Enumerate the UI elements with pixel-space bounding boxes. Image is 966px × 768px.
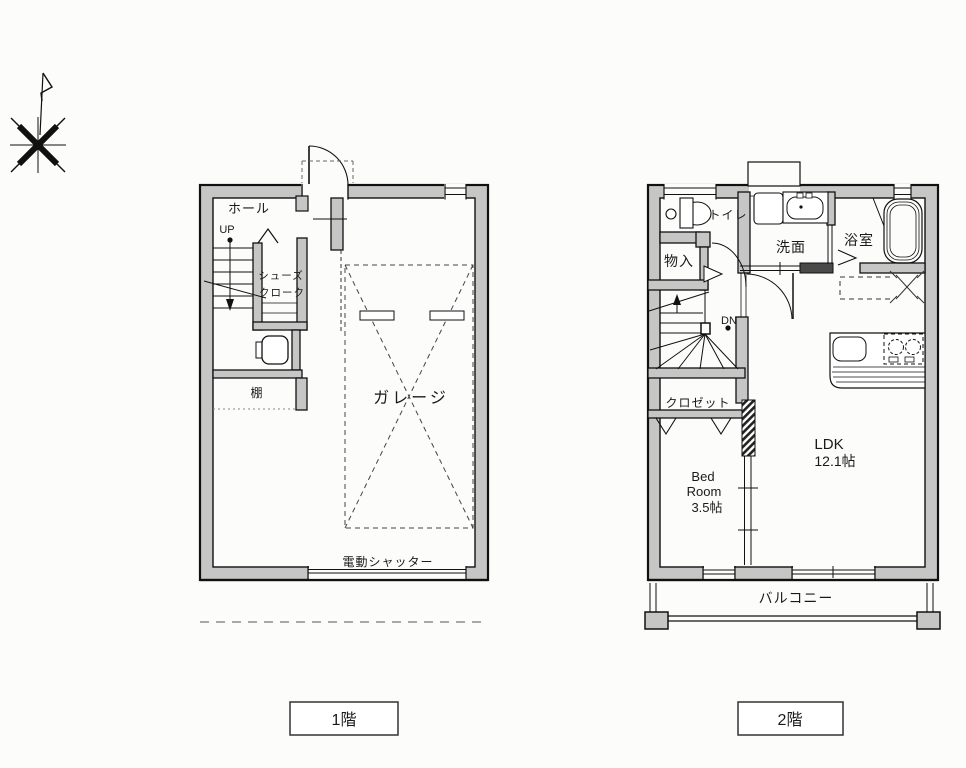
window-toilet [664, 184, 716, 200]
room-label-washroom: 洗面 [776, 239, 806, 255]
compass-north-icon [10, 73, 66, 173]
utility-sink-fixture [256, 336, 288, 364]
wall-cabinet-symbol [840, 271, 924, 303]
room-label-storage: 物入 [664, 253, 694, 269]
garage-marks [360, 311, 464, 320]
entrance-door [296, 146, 353, 211]
up-label: UP [219, 224, 234, 236]
bathtub-fixture [828, 198, 922, 265]
room-label-garage: ガレージ [373, 389, 449, 407]
floor1-plan: UP シューズ クローク 棚 ホール ガレージ 電動シャッター [200, 146, 488, 622]
window-bathroom [894, 184, 911, 200]
room-label-bedroom-2: Room [687, 484, 722, 499]
floor1-caption: 1階 [332, 711, 357, 729]
sliding-door-partition [738, 400, 758, 565]
room-label-bedroom-size: 3.5帖 [691, 500, 722, 515]
room-label-shoe-closet-1: シューズ [258, 269, 303, 282]
room-label-hall: ホール [228, 201, 270, 216]
kitchen-sink [833, 337, 866, 361]
dn-label: DN [721, 315, 737, 327]
room-label-closet: クロゼット [665, 396, 730, 410]
wall-dark-section [800, 263, 833, 273]
room-label-ldk: LDK [814, 436, 843, 453]
room-label-bathroom: 浴室 [844, 232, 874, 248]
storage-door-mark [704, 266, 722, 282]
label-electric-shutter: 電動シャッター [342, 555, 433, 569]
window-1f-top [444, 184, 466, 200]
floor-plan-page: UP シューズ クローク 棚 ホール ガレージ 電動シャッター [0, 0, 966, 768]
floor2-caption: 2階 [778, 711, 803, 729]
ldk-door [741, 273, 793, 319]
room-label-toilet: トイレ [708, 208, 747, 222]
floor2-plan: トイレ 物入 洗面 浴室 [645, 162, 940, 629]
toilet-fixture [666, 198, 711, 228]
floor-plan-svg: UP シューズ クローク 棚 ホール ガレージ 電動シャッター [0, 0, 966, 768]
closet-doors [656, 418, 731, 434]
label-balcony: バルコニー [759, 590, 834, 606]
kitchen-counter [830, 333, 925, 388]
stairs-2f [649, 290, 738, 369]
room-label-bedroom-1: Bed [691, 469, 714, 484]
room-label-shoe-closet-2: クローク [259, 287, 305, 299]
window-bedroom-balcony [703, 566, 735, 579]
room-label-shelf: 棚 [250, 385, 263, 400]
washroom-fixtures [754, 192, 828, 224]
room-label-ldk-size: 12.1帖 [814, 453, 855, 469]
